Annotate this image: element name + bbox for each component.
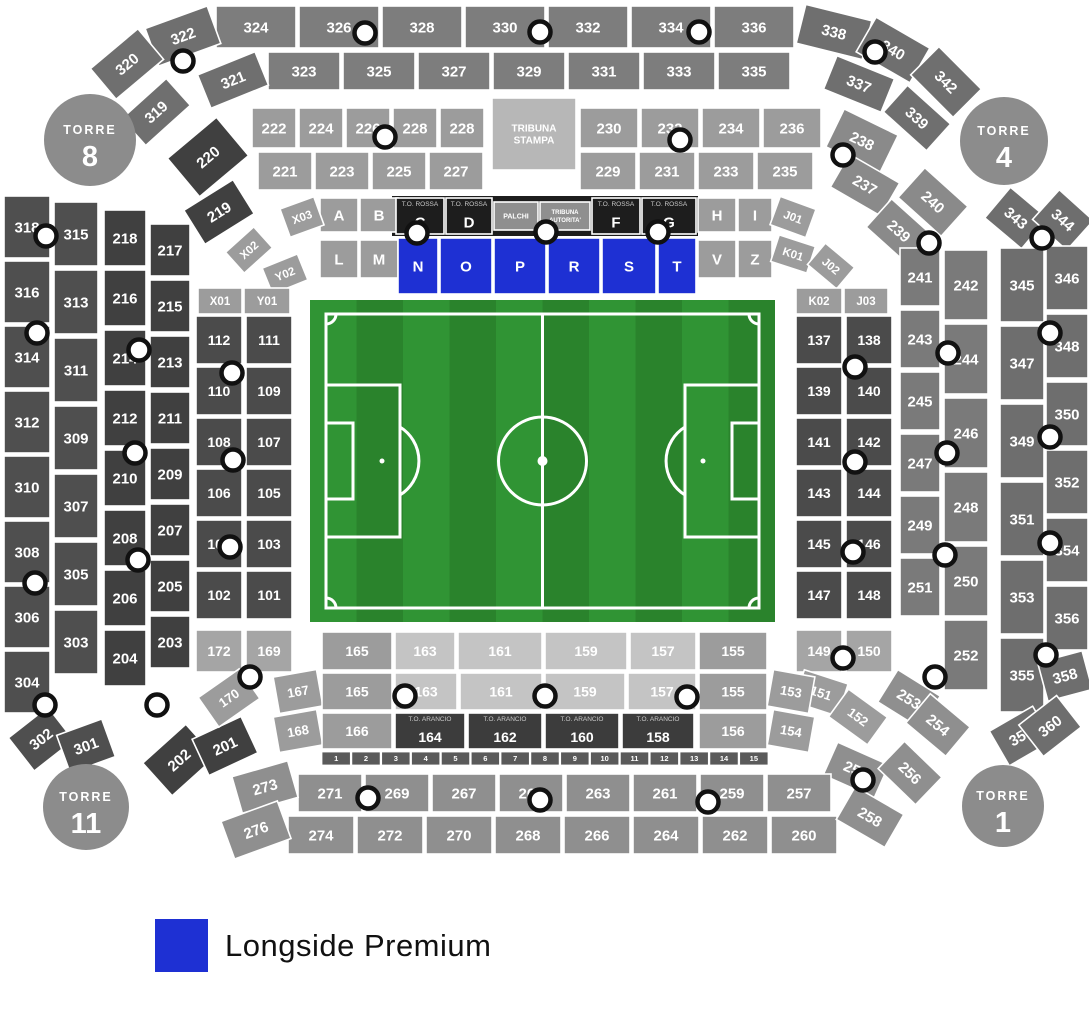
section-209[interactable]: 209	[150, 448, 190, 500]
svg-text:311: 311	[64, 362, 88, 379]
gate-marker-icon	[222, 363, 243, 384]
svg-text:245: 245	[907, 393, 932, 410]
gate-marker-icon	[845, 452, 866, 473]
svg-text:345: 345	[1009, 277, 1034, 294]
section-147[interactable]: 147	[796, 571, 842, 619]
section-270[interactable]: 270	[426, 816, 492, 854]
section-l[interactable]: L	[320, 240, 358, 278]
strip-cell-14[interactable]: 14	[710, 752, 738, 765]
svg-text:230: 230	[596, 120, 621, 137]
section-335[interactable]: 335	[718, 52, 790, 90]
section-268[interactable]: 268	[495, 816, 561, 854]
svg-text:T.O. ARANCIO: T.O. ARANCIO	[484, 716, 527, 723]
section-x01[interactable]: X01	[198, 288, 242, 314]
gate-marker-icon	[648, 222, 669, 243]
section-227[interactable]: 227	[429, 152, 483, 190]
svg-text:T.O. ROSSA: T.O. ROSSA	[451, 201, 488, 208]
svg-text:141: 141	[807, 434, 831, 450]
section-262[interactable]: 262	[702, 816, 768, 854]
section-palchi[interactable]: PALCHI	[494, 202, 538, 230]
section-245[interactable]: 245	[900, 372, 940, 430]
svg-text:148: 148	[857, 587, 881, 603]
section-b[interactable]: B	[360, 198, 398, 232]
svg-text:228: 228	[449, 120, 474, 137]
section-112[interactable]: 112	[196, 316, 242, 364]
strip-cell-13[interactable]: 13	[680, 752, 708, 765]
section-205[interactable]: 205	[150, 560, 190, 612]
section-264[interactable]: 264	[633, 816, 699, 854]
svg-text:347: 347	[1009, 355, 1034, 372]
gate-marker-icon	[689, 22, 710, 43]
svg-text:STAMPA: STAMPA	[514, 136, 555, 147]
section-252[interactable]: 252	[944, 620, 988, 690]
section-o[interactable]: O	[440, 238, 492, 294]
gate-marker-icon	[937, 443, 958, 464]
svg-text:249: 249	[907, 517, 932, 534]
svg-text:110: 110	[208, 383, 231, 399]
svg-text:156: 156	[721, 723, 745, 739]
tower-4: TORRE4	[960, 97, 1048, 185]
svg-text:211: 211	[158, 410, 182, 427]
svg-text:101: 101	[257, 587, 281, 603]
svg-text:204: 204	[112, 650, 138, 667]
svg-text:310: 310	[14, 479, 39, 496]
section-229[interactable]: 229	[580, 152, 636, 190]
section-k02[interactable]: K02	[796, 288, 842, 314]
strip-cell-8[interactable]: 8	[531, 752, 559, 765]
svg-text:223: 223	[329, 163, 354, 180]
section-258[interactable]: 258	[836, 787, 903, 848]
section-213[interactable]: 213	[150, 336, 190, 388]
section-248[interactable]: 248	[944, 472, 988, 542]
svg-text:B: B	[374, 207, 385, 224]
section-249[interactable]: 249	[900, 496, 940, 554]
svg-text:7: 7	[513, 754, 517, 763]
svg-text:159: 159	[574, 643, 598, 659]
svg-text:207: 207	[157, 522, 182, 539]
strip-cell-5[interactable]: 5	[441, 752, 469, 765]
section-163[interactable]: 163	[395, 632, 455, 670]
svg-text:S: S	[624, 258, 634, 275]
svg-text:264: 264	[653, 827, 679, 844]
section-k01[interactable]: K01	[771, 235, 816, 273]
section-165[interactable]: 165	[322, 632, 392, 670]
section-168[interactable]: 168	[273, 709, 323, 752]
svg-text:103: 103	[257, 536, 281, 552]
section-256[interactable]: 256	[878, 741, 942, 804]
section-306[interactable]: 306	[4, 586, 50, 648]
legend: Longside Premium	[155, 919, 491, 972]
section-305[interactable]: 305	[54, 542, 98, 606]
svg-text:213: 213	[157, 354, 182, 371]
section-251[interactable]: 251	[900, 558, 940, 616]
svg-text:111: 111	[258, 332, 280, 348]
strip-cell-15[interactable]: 15	[740, 752, 768, 765]
section-346[interactable]: 346	[1046, 246, 1088, 310]
section-347[interactable]: 347	[1000, 326, 1044, 400]
section-311[interactable]: 311	[54, 338, 98, 402]
section-218[interactable]: 218	[104, 210, 146, 266]
section-167[interactable]: 167	[273, 669, 323, 713]
gate-marker-icon	[938, 343, 959, 364]
svg-text:V: V	[712, 251, 722, 268]
gate-marker-icon	[865, 42, 886, 63]
section-j01[interactable]: J01	[770, 196, 816, 237]
section-154[interactable]: 154	[767, 710, 815, 753]
section-155[interactable]: 155	[699, 673, 767, 710]
strip-cell-9[interactable]: 9	[561, 752, 589, 765]
strip-cell-6[interactable]: 6	[471, 752, 499, 765]
football-pitch	[310, 300, 775, 622]
gate-marker-icon	[358, 788, 379, 809]
section-333[interactable]: 333	[643, 52, 715, 90]
gate-marker-icon	[530, 22, 551, 43]
section-137[interactable]: 137	[796, 316, 842, 364]
section-223[interactable]: 223	[315, 152, 369, 190]
svg-text:157: 157	[651, 643, 675, 659]
section-331[interactable]: 331	[568, 52, 640, 90]
section-325[interactable]: 325	[343, 52, 415, 90]
svg-text:14: 14	[720, 754, 729, 763]
svg-text:166: 166	[345, 723, 369, 739]
section-162[interactable]: T.O. ARANCIO162	[468, 713, 542, 749]
section-321[interactable]: 321	[198, 52, 269, 109]
svg-text:334: 334	[658, 19, 684, 36]
section-247[interactable]: 247	[900, 434, 940, 492]
svg-text:304: 304	[14, 674, 40, 691]
section-324[interactable]: 324	[216, 6, 296, 48]
svg-text:262: 262	[722, 827, 747, 844]
svg-text:D: D	[464, 214, 475, 231]
svg-text:147: 147	[807, 587, 831, 603]
section-z[interactable]: Z	[738, 240, 772, 278]
section-243[interactable]: 243	[900, 310, 940, 368]
section-260[interactable]: 260	[771, 816, 837, 854]
section-n[interactable]: N	[398, 238, 438, 294]
svg-text:163: 163	[414, 683, 438, 699]
svg-text:274: 274	[308, 827, 334, 844]
strip-cell-12[interactable]: 12	[650, 752, 678, 765]
svg-text:327: 327	[441, 63, 466, 80]
section-155[interactable]: 155	[699, 632, 767, 670]
section-159[interactable]: 159	[545, 673, 625, 710]
section-336[interactable]: 336	[714, 6, 794, 48]
gate-marker-icon	[223, 450, 244, 471]
section-105[interactable]: 105	[246, 469, 292, 517]
svg-text:155: 155	[721, 643, 745, 659]
section-353[interactable]: 353	[1000, 560, 1044, 634]
svg-text:308: 308	[14, 544, 39, 561]
gate-marker-icon	[677, 687, 698, 708]
section-263[interactable]: 263	[566, 774, 630, 812]
section-x03[interactable]: X03	[280, 197, 324, 238]
svg-text:272: 272	[377, 827, 402, 844]
svg-text:L: L	[334, 251, 343, 268]
svg-text:149: 149	[807, 643, 831, 659]
strip-cell-10[interactable]: 10	[591, 752, 619, 765]
section-106[interactable]: 106	[196, 469, 242, 517]
svg-text:306: 306	[14, 609, 39, 626]
tower-1: TORRE1	[962, 765, 1044, 847]
svg-text:TRIBUNA: TRIBUNA	[512, 124, 557, 135]
gate-marker-icon	[1032, 228, 1053, 249]
section-221[interactable]: 221	[258, 152, 312, 190]
svg-text:325: 325	[366, 63, 391, 80]
svg-text:261: 261	[652, 785, 677, 802]
svg-text:TORRE: TORRE	[976, 789, 1030, 803]
svg-text:251: 251	[907, 579, 932, 596]
section-161[interactable]: 161	[460, 673, 542, 710]
section-107[interactable]: 107	[246, 418, 292, 466]
svg-text:351: 351	[1009, 511, 1034, 528]
svg-text:227: 227	[443, 163, 468, 180]
section-235[interactable]: 235	[757, 152, 813, 190]
svg-text:210: 210	[112, 470, 137, 487]
section-160[interactable]: T.O. ARANCIO160	[545, 713, 619, 749]
section-303[interactable]: 303	[54, 610, 98, 674]
section-206[interactable]: 206	[104, 570, 146, 626]
section-t[interactable]: T	[658, 238, 696, 294]
section-241[interactable]: 241	[900, 248, 940, 306]
legend-swatch	[155, 919, 208, 972]
gate-marker-icon	[1040, 323, 1061, 344]
section-329[interactable]: 329	[493, 52, 565, 90]
section-352[interactable]: 352	[1046, 450, 1088, 514]
section-224[interactable]: 224	[299, 108, 343, 148]
svg-text:335: 335	[741, 63, 766, 80]
section-217[interactable]: 217	[150, 224, 190, 276]
svg-text:1: 1	[334, 754, 338, 763]
section-222[interactable]: 222	[252, 108, 296, 148]
svg-text:259: 259	[719, 785, 744, 802]
section-p[interactable]: P	[494, 238, 546, 294]
section-f[interactable]: T.O. ROSSAF	[592, 198, 640, 234]
svg-text:352: 352	[1054, 474, 1079, 491]
section-233[interactable]: 233	[698, 152, 754, 190]
section-257[interactable]: 257	[767, 774, 831, 812]
section-276[interactable]: 276	[221, 801, 291, 859]
strip-cell-11[interactable]: 11	[620, 752, 648, 765]
svg-text:228: 228	[402, 120, 427, 137]
section-a[interactable]: A	[320, 198, 358, 232]
gate-marker-icon	[536, 222, 557, 243]
section-164[interactable]: T.O. ARANCIO164	[395, 713, 465, 749]
section-166[interactable]: 166	[322, 713, 392, 749]
section-242[interactable]: 242	[944, 250, 988, 320]
strip-cell-7[interactable]: 7	[501, 752, 529, 765]
svg-text:142: 142	[857, 434, 881, 450]
section-316[interactable]: 316	[4, 261, 50, 323]
svg-text:3: 3	[394, 754, 398, 763]
section-r[interactable]: R	[548, 238, 600, 294]
gate-marker-icon	[1040, 533, 1061, 554]
gate-marker-icon	[35, 695, 56, 716]
svg-text:312: 312	[14, 414, 39, 431]
section-204[interactable]: 204	[104, 630, 146, 686]
svg-text:165: 165	[345, 643, 369, 659]
gate-marker-icon	[1040, 427, 1061, 448]
section-tribuna-stampa[interactable]: TRIBUNASTAMPA	[492, 98, 576, 170]
strip-cell-1[interactable]: 1	[322, 752, 350, 765]
section-225[interactable]: 225	[372, 152, 426, 190]
tower-11: TORRE11	[43, 764, 129, 850]
section-103[interactable]: 103	[246, 520, 292, 568]
section-315[interactable]: 315	[54, 202, 98, 266]
gate-marker-icon	[128, 550, 149, 571]
section-102[interactable]: 102	[196, 571, 242, 619]
section-165[interactable]: 165	[322, 673, 392, 710]
svg-text:270: 270	[446, 827, 471, 844]
svg-text:271: 271	[317, 785, 342, 802]
section-313[interactable]: 313	[54, 270, 98, 334]
section-207[interactable]: 207	[150, 504, 190, 556]
section-158[interactable]: T.O. ARANCIO158	[622, 713, 694, 749]
section-y01[interactable]: Y01	[244, 288, 290, 314]
svg-text:331: 331	[591, 63, 616, 80]
strip-cell-4[interactable]: 4	[412, 752, 440, 765]
gate-marker-icon	[355, 23, 376, 44]
section-i[interactable]: I	[738, 198, 772, 232]
svg-text:N: N	[413, 258, 424, 275]
gate-marker-icon	[220, 537, 241, 558]
svg-text:206: 206	[112, 590, 137, 607]
gate-marker-icon	[935, 545, 956, 566]
svg-text:234: 234	[718, 120, 744, 137]
section-230[interactable]: 230	[580, 108, 638, 148]
svg-text:T.O. ARANCIO: T.O. ARANCIO	[637, 716, 680, 723]
section-349[interactable]: 349	[1000, 404, 1044, 478]
svg-text:T: T	[672, 258, 681, 275]
section-307[interactable]: 307	[54, 474, 98, 538]
svg-text:243: 243	[907, 331, 932, 348]
svg-text:225: 225	[386, 163, 411, 180]
strip-cell-2[interactable]: 2	[352, 752, 380, 765]
svg-text:229: 229	[595, 163, 620, 180]
svg-text:TORRE: TORRE	[63, 123, 117, 137]
section-236[interactable]: 236	[763, 108, 821, 148]
section-j03[interactable]: J03	[844, 288, 888, 314]
section-231[interactable]: 231	[639, 152, 695, 190]
svg-text:246: 246	[953, 425, 978, 442]
section-139[interactable]: 139	[796, 367, 842, 415]
section-153[interactable]: 153	[767, 670, 815, 714]
svg-text:137: 137	[807, 332, 831, 348]
section-v[interactable]: V	[698, 240, 736, 278]
svg-text:9: 9	[573, 754, 577, 763]
gate-marker-icon	[240, 667, 261, 688]
section-228[interactable]: 228	[440, 108, 484, 148]
svg-text:159: 159	[573, 683, 597, 699]
svg-text:157: 157	[650, 683, 674, 699]
section-271[interactable]: 271	[298, 774, 362, 812]
section-345[interactable]: 345	[1000, 248, 1044, 322]
svg-text:F: F	[611, 214, 620, 231]
svg-text:162: 162	[493, 729, 517, 745]
gate-marker-icon	[395, 686, 416, 707]
svg-text:4: 4	[996, 142, 1012, 174]
svg-text:233: 233	[713, 163, 738, 180]
section-328[interactable]: 328	[382, 6, 462, 48]
section-261[interactable]: 261	[633, 774, 697, 812]
svg-text:TORRE: TORRE	[59, 790, 113, 804]
section-161[interactable]: 161	[458, 632, 542, 670]
section-215[interactable]: 215	[150, 280, 190, 332]
section-211[interactable]: 211	[150, 392, 190, 444]
section-s[interactable]: S	[602, 238, 656, 294]
svg-text:144: 144	[857, 485, 881, 501]
section-266[interactable]: 266	[564, 816, 630, 854]
svg-text:P: P	[515, 258, 525, 275]
section-356[interactable]: 356	[1046, 586, 1088, 650]
gate-marker-icon	[25, 573, 46, 594]
section-323[interactable]: 323	[268, 52, 340, 90]
section-156[interactable]: 156	[699, 713, 767, 749]
section-274[interactable]: 274	[288, 816, 354, 854]
section-148[interactable]: 148	[846, 571, 892, 619]
section-310[interactable]: 310	[4, 456, 50, 518]
section-332[interactable]: 332	[548, 6, 628, 48]
section-172[interactable]: 172	[196, 630, 242, 672]
strip-cell-3[interactable]: 3	[382, 752, 410, 765]
section-101[interactable]: 101	[246, 571, 292, 619]
svg-text:T.O. ARANCIO: T.O. ARANCIO	[561, 716, 604, 723]
section-144[interactable]: 144	[846, 469, 892, 517]
svg-text:316: 316	[14, 284, 39, 301]
svg-text:313: 313	[63, 294, 88, 311]
section-157[interactable]: 157	[630, 632, 696, 670]
section-159[interactable]: 159	[545, 632, 627, 670]
section-d[interactable]: T.O. ROSSAD	[446, 198, 492, 234]
section-h[interactable]: H	[698, 198, 736, 232]
section-267[interactable]: 267	[432, 774, 496, 812]
gate-marker-icon	[36, 226, 57, 247]
svg-text:216: 216	[112, 290, 137, 307]
section-312[interactable]: 312	[4, 391, 50, 453]
section-145[interactable]: 145	[796, 520, 842, 568]
svg-text:355: 355	[1009, 667, 1034, 684]
section-327[interactable]: 327	[418, 52, 490, 90]
section-141[interactable]: 141	[796, 418, 842, 466]
section-212[interactable]: 212	[104, 390, 146, 446]
svg-text:11: 11	[71, 808, 102, 840]
section-272[interactable]: 272	[357, 816, 423, 854]
svg-text:102: 102	[207, 587, 231, 603]
svg-text:T.O. ARANCIO: T.O. ARANCIO	[409, 716, 452, 723]
section-109[interactable]: 109	[246, 367, 292, 415]
section-143[interactable]: 143	[796, 469, 842, 517]
svg-text:138: 138	[857, 332, 881, 348]
svg-text:150: 150	[857, 643, 881, 659]
svg-text:165: 165	[345, 683, 369, 699]
section-m[interactable]: M	[360, 240, 398, 278]
section-228[interactable]: 228	[393, 108, 437, 148]
svg-text:Y01: Y01	[257, 296, 278, 308]
section-111[interactable]: 111	[246, 316, 292, 364]
svg-text:260: 260	[791, 827, 816, 844]
gate-marker-icon	[833, 145, 854, 166]
svg-text:324: 324	[243, 19, 269, 36]
svg-text:329: 329	[516, 63, 541, 80]
svg-text:236: 236	[779, 120, 804, 137]
section-234[interactable]: 234	[702, 108, 760, 148]
svg-text:336: 336	[741, 19, 766, 36]
gate-marker-icon	[535, 686, 556, 707]
section-203[interactable]: 203	[150, 616, 190, 668]
svg-text:217: 217	[157, 242, 182, 259]
section-309[interactable]: 309	[54, 406, 98, 470]
svg-text:105: 105	[257, 485, 281, 501]
section-216[interactable]: 216	[104, 270, 146, 326]
